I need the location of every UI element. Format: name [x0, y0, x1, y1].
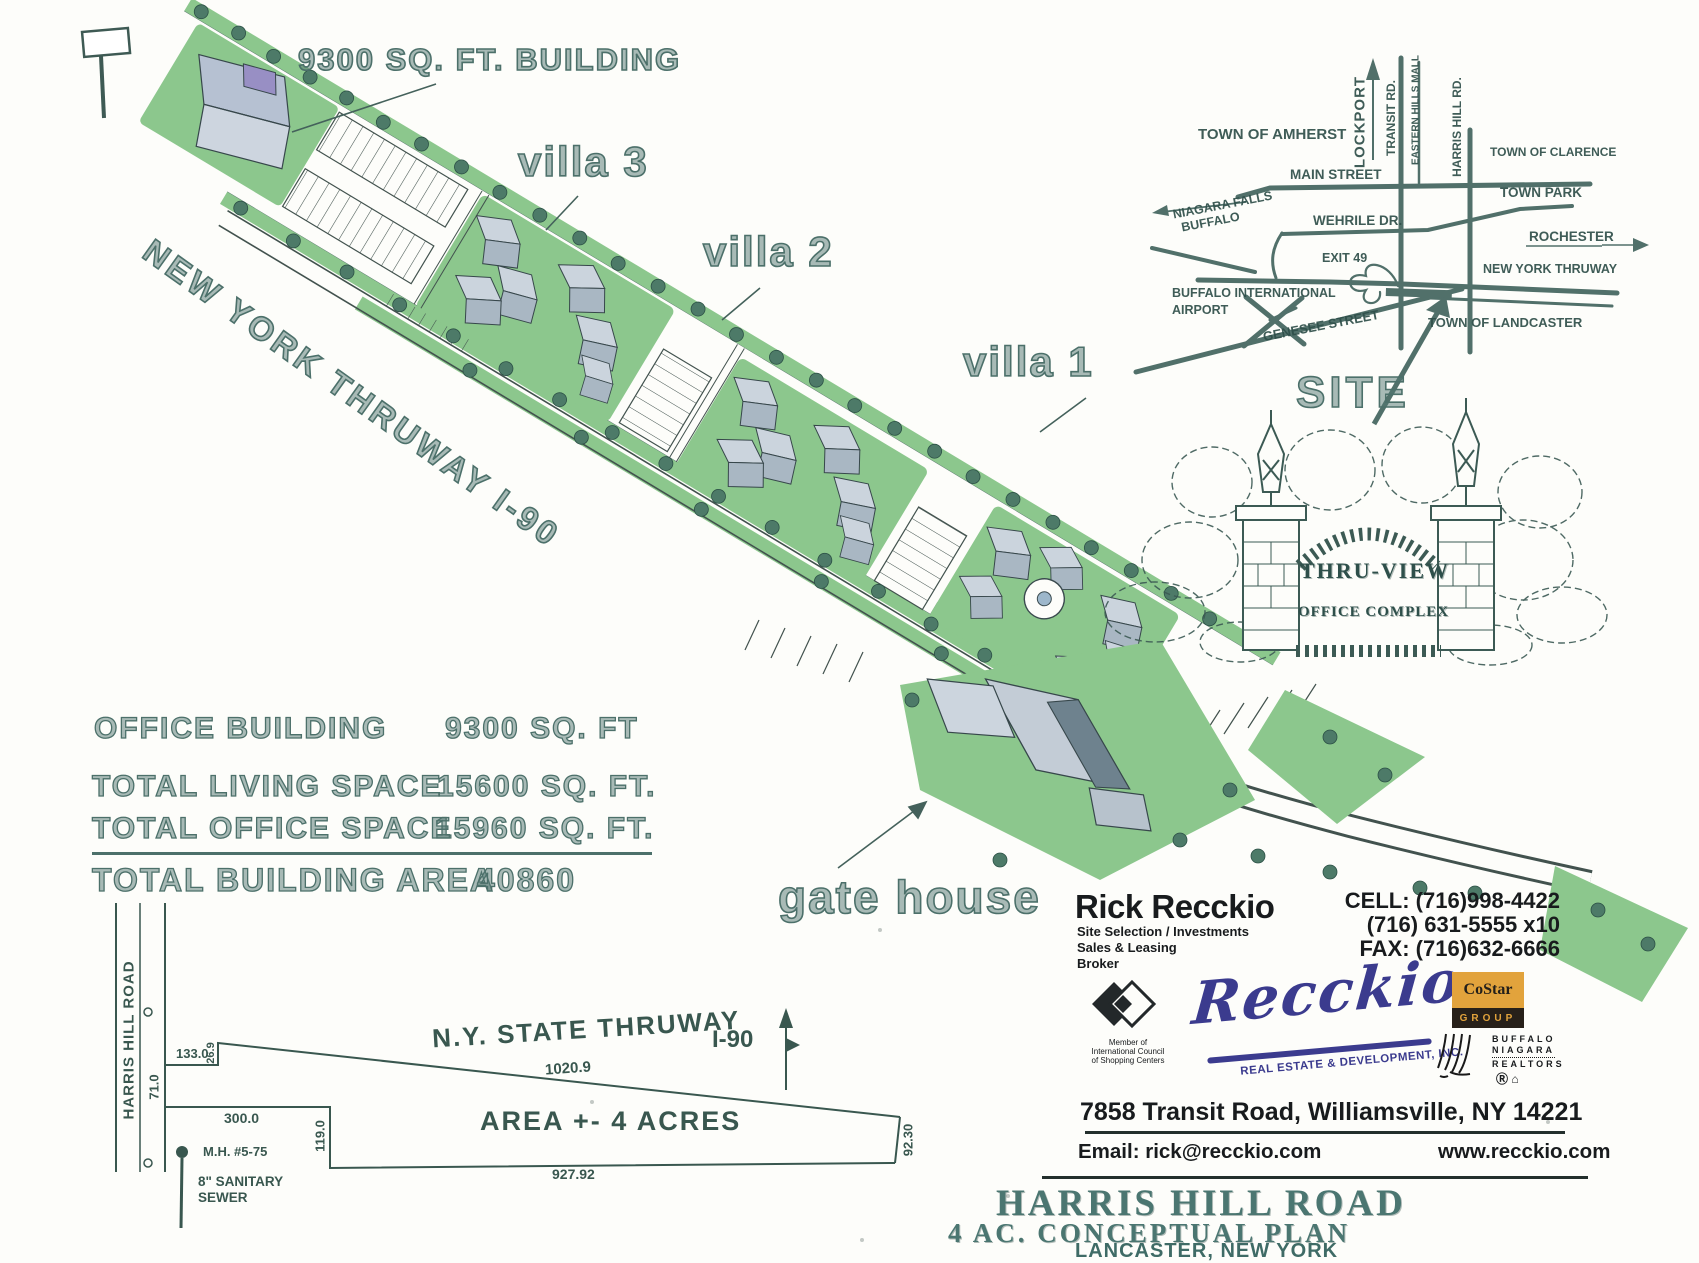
- waterfall-icon: [1436, 1032, 1488, 1078]
- map-new-york-thruway: NEW YORK THRUWAY: [1483, 262, 1617, 276]
- map-harris-hill-rd: HARRIS HILL RD.: [1450, 77, 1464, 177]
- costar-group-text: GROUP: [1460, 1013, 1517, 1024]
- broker-role-1: Site Selection / Investments: [1077, 924, 1249, 939]
- survey-dim-927: 927.92: [552, 1166, 595, 1182]
- costar-logo-text: CoStar: [1464, 981, 1513, 999]
- survey-dim-119: 119.0: [313, 1120, 328, 1152]
- broker-role-2: Sales & Leasing: [1077, 940, 1177, 955]
- email-divider: [1042, 1176, 1588, 1179]
- survey-dim-71: 71.0: [147, 1074, 162, 1099]
- broker-name: Rick Recckio: [1075, 888, 1274, 926]
- stat-office-building-label: OFFICE BUILDING: [94, 712, 387, 746]
- map-buffalo-international: BUFFALO INTERNATIONAL: [1172, 286, 1336, 300]
- stat-office-space-value: 15960 SQ. FT.: [435, 812, 654, 846]
- phone-office: (716) 631-5555 x10: [1330, 912, 1560, 938]
- costar-logo-bottom: GROUP: [1452, 1008, 1524, 1028]
- scanned-conceptual-plan-page: 9300 SQ. FT. BUILDING villa 3 villa 2 vi…: [0, 0, 1699, 1263]
- map-eastern-hills: EASTERN HILLS MALL: [1411, 55, 1422, 165]
- survey-dim-9230: 92.30: [901, 1124, 916, 1157]
- icsc-caption-2: International Council: [1078, 1047, 1178, 1056]
- costar-logo: CoStar GROUP: [1452, 972, 1524, 1030]
- company-address: 7858 Transit Road, Williamsville, NY 142…: [1080, 1098, 1520, 1127]
- map-wehrile-dr: WEHRILE DR.: [1313, 213, 1402, 228]
- map-town-park: TOWN PARK: [1500, 185, 1582, 200]
- site-label: SITE: [1296, 368, 1410, 418]
- villa1-label: villa 1: [963, 338, 1094, 386]
- realtor-house-icons: Ⓡ ⌂: [1496, 1070, 1519, 1087]
- stat-living-space-value: 15600 SQ. FT.: [437, 770, 656, 804]
- stat-total-label: TOTAL BUILDING AREA: [92, 862, 495, 899]
- survey-sewer-line1: 8" SANITARY: [198, 1174, 283, 1189]
- bn-realtors-line3: REALTORS: [1492, 1059, 1565, 1069]
- stat-living-space-label: TOTAL LIVING SPACE: [92, 770, 442, 804]
- villa3-label: villa 3: [518, 138, 649, 186]
- icsc-caption-3: of Shopping Centers: [1078, 1056, 1178, 1065]
- stat-office-building-value: 9300 SQ. FT: [445, 712, 639, 746]
- map-exit-49: EXIT 49: [1322, 251, 1367, 265]
- stat-office-space-label: TOTAL OFFICE SPACE: [92, 812, 452, 846]
- broker-role-3: Broker: [1077, 956, 1119, 971]
- map-town-amherst: TOWN OF AMHERST: [1198, 126, 1346, 143]
- phone-cell: CELL: (716)998-4422: [1330, 888, 1560, 914]
- website-text: www.recckio.com: [1438, 1140, 1610, 1164]
- map-main-street: MAIN STREET: [1290, 167, 1382, 182]
- plan-title-line3: LANCASTER, NEW YORK: [1075, 1240, 1338, 1263]
- villa2-label: villa 2: [703, 228, 834, 276]
- gate-house-label: gate house: [778, 870, 1041, 924]
- survey-dim-1020: 1020.9: [544, 1058, 591, 1078]
- bn-realtors-line1: BUFFALO: [1492, 1034, 1556, 1044]
- entry-sign-drawing: [1105, 398, 1607, 665]
- icsc-caption-1: Member of: [1078, 1038, 1178, 1047]
- map-lockport: LOCKPORT: [1352, 76, 1369, 168]
- north-arrow-icon: [779, 1008, 800, 1090]
- stat-total-value: 40860: [477, 862, 576, 899]
- address-divider: [1085, 1131, 1565, 1134]
- survey-sewer-line2: SEWER: [198, 1190, 248, 1205]
- costar-logo-top: CoStar: [1452, 972, 1524, 1008]
- map-rochester: ROCHESTER: [1529, 229, 1614, 244]
- map-town-landcaster: TOWN OF LANDCASTER: [1428, 315, 1582, 330]
- survey-i90: I-90: [712, 1026, 753, 1054]
- survey-manhole: M.H. #5-75: [203, 1144, 267, 1159]
- icsc-logo-icon: [1092, 978, 1162, 1036]
- survey-dim-133: 133.0: [176, 1046, 209, 1061]
- bn-realtors-line2: NIAGARA: [1492, 1045, 1555, 1058]
- billboard-icon: [82, 28, 130, 118]
- email-text: Email: rick@recckio.com: [1078, 1140, 1321, 1164]
- survey-area: AREA +- 4 ACRES: [480, 1106, 741, 1137]
- stats-divider: [92, 852, 652, 855]
- sign-thru-view: THRU-VIEW: [1300, 558, 1436, 584]
- sign-office-complex: OFFICE COMPLEX: [1298, 604, 1438, 621]
- survey-dim-269: 26.9: [205, 1042, 217, 1063]
- survey-harris-hill-road: HARRIS HILL ROAD: [121, 960, 138, 1119]
- map-transit-rd: TRANSIT RD.: [1384, 80, 1398, 156]
- building-sqft-label: 9300 SQ. FT. BUILDING: [298, 42, 681, 78]
- map-town-clarence: TOWN OF CLARENCE: [1490, 145, 1616, 159]
- map-airport: AIRPORT: [1172, 303, 1228, 317]
- survey-dim-300: 300.0: [224, 1110, 259, 1126]
